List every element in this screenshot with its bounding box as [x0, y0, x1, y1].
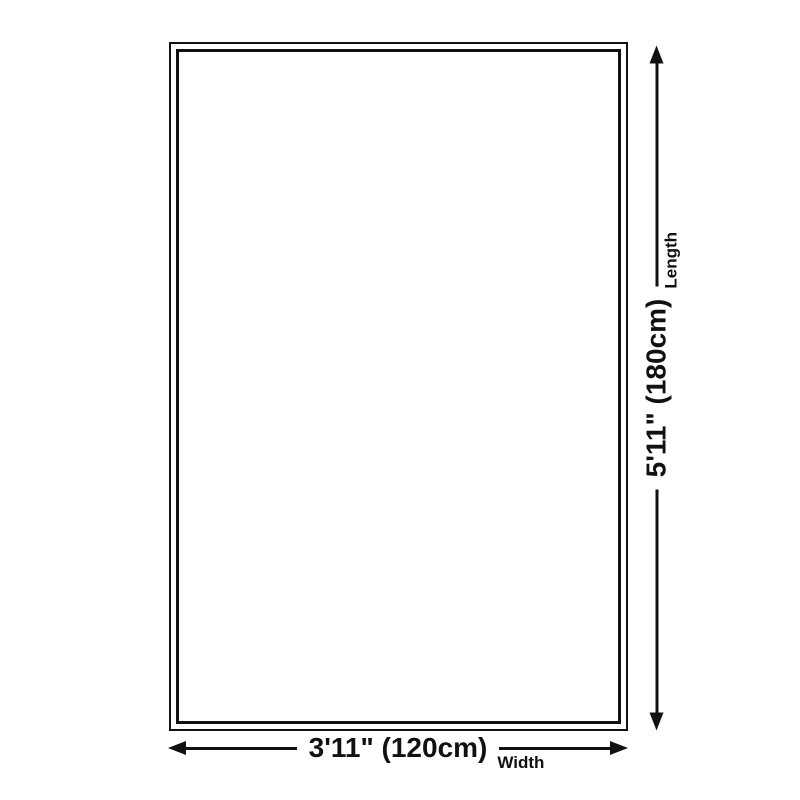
- length-dimension-value: 5'11" (180cm): [643, 287, 671, 490]
- width-dimension-arrow: 3'11" (120cm) Width: [168, 728, 628, 768]
- arrow-right-icon: [610, 741, 628, 755]
- width-dimension-value: 3'11" (120cm): [297, 734, 500, 762]
- length-dimension-line-bottom: [655, 489, 658, 712]
- width-axis-label: Width: [497, 754, 544, 771]
- rug-inner-border: [176, 49, 621, 724]
- length-dimension-line-top: Length: [655, 64, 658, 287]
- length-axis-label: Length: [662, 232, 679, 289]
- rug-outline: [169, 42, 628, 731]
- arrow-down-icon: [650, 713, 664, 731]
- width-dimension-line-right: Width: [499, 747, 610, 750]
- arrow-left-icon: [168, 741, 186, 755]
- length-dimension-arrow: 5'11" (180cm) Length: [637, 46, 677, 731]
- width-dimension-line-left: [186, 747, 297, 750]
- rug-size-diagram: 3'11" (120cm) Width 5'11" (180cm) Length: [0, 0, 800, 800]
- arrow-up-icon: [650, 46, 664, 64]
